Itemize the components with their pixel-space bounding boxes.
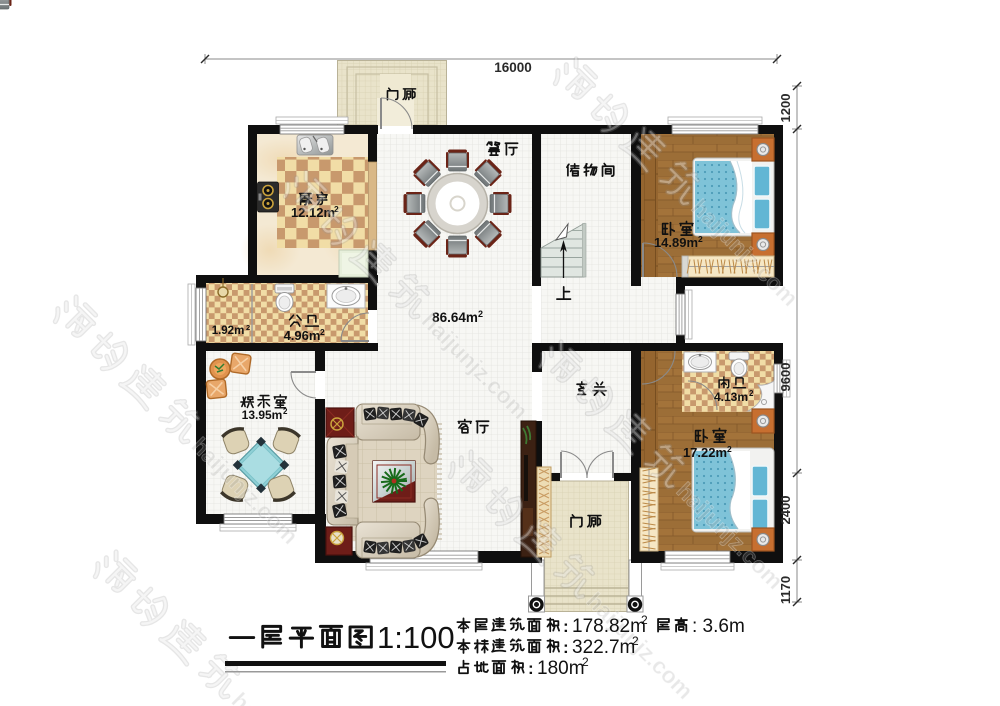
svg-text::: :	[528, 659, 534, 678]
svg-text:2: 2	[283, 407, 288, 416]
svg-text:4.96m: 4.96m	[284, 328, 321, 343]
svg-text:13.95m: 13.95m	[242, 408, 283, 422]
svg-text::: :	[563, 638, 569, 657]
svg-text:16000: 16000	[494, 60, 532, 75]
svg-text:9600: 9600	[778, 363, 793, 392]
svg-text:2: 2	[641, 613, 648, 627]
svg-text:180m: 180m	[537, 658, 585, 679]
svg-text:2: 2	[478, 309, 483, 319]
svg-text:2: 2	[320, 327, 325, 337]
svg-text:1200: 1200	[778, 94, 793, 123]
svg-text:2: 2	[246, 323, 250, 332]
svg-text:17.22m: 17.22m	[683, 445, 727, 460]
svg-text:: 3.6m: : 3.6m	[692, 616, 745, 637]
svg-text:2: 2	[632, 634, 639, 648]
svg-text:1:100: 1:100	[377, 620, 455, 655]
svg-text:2: 2	[582, 655, 589, 669]
svg-text::: :	[563, 617, 569, 636]
svg-text:2: 2	[727, 444, 732, 454]
svg-text:2: 2	[749, 389, 754, 398]
svg-text:2400: 2400	[778, 496, 793, 525]
svg-text:1.92m: 1.92m	[212, 325, 245, 337]
svg-text:4.13m: 4.13m	[714, 390, 748, 404]
svg-text:14.89m: 14.89m	[654, 235, 698, 250]
svg-text:2: 2	[698, 234, 703, 244]
